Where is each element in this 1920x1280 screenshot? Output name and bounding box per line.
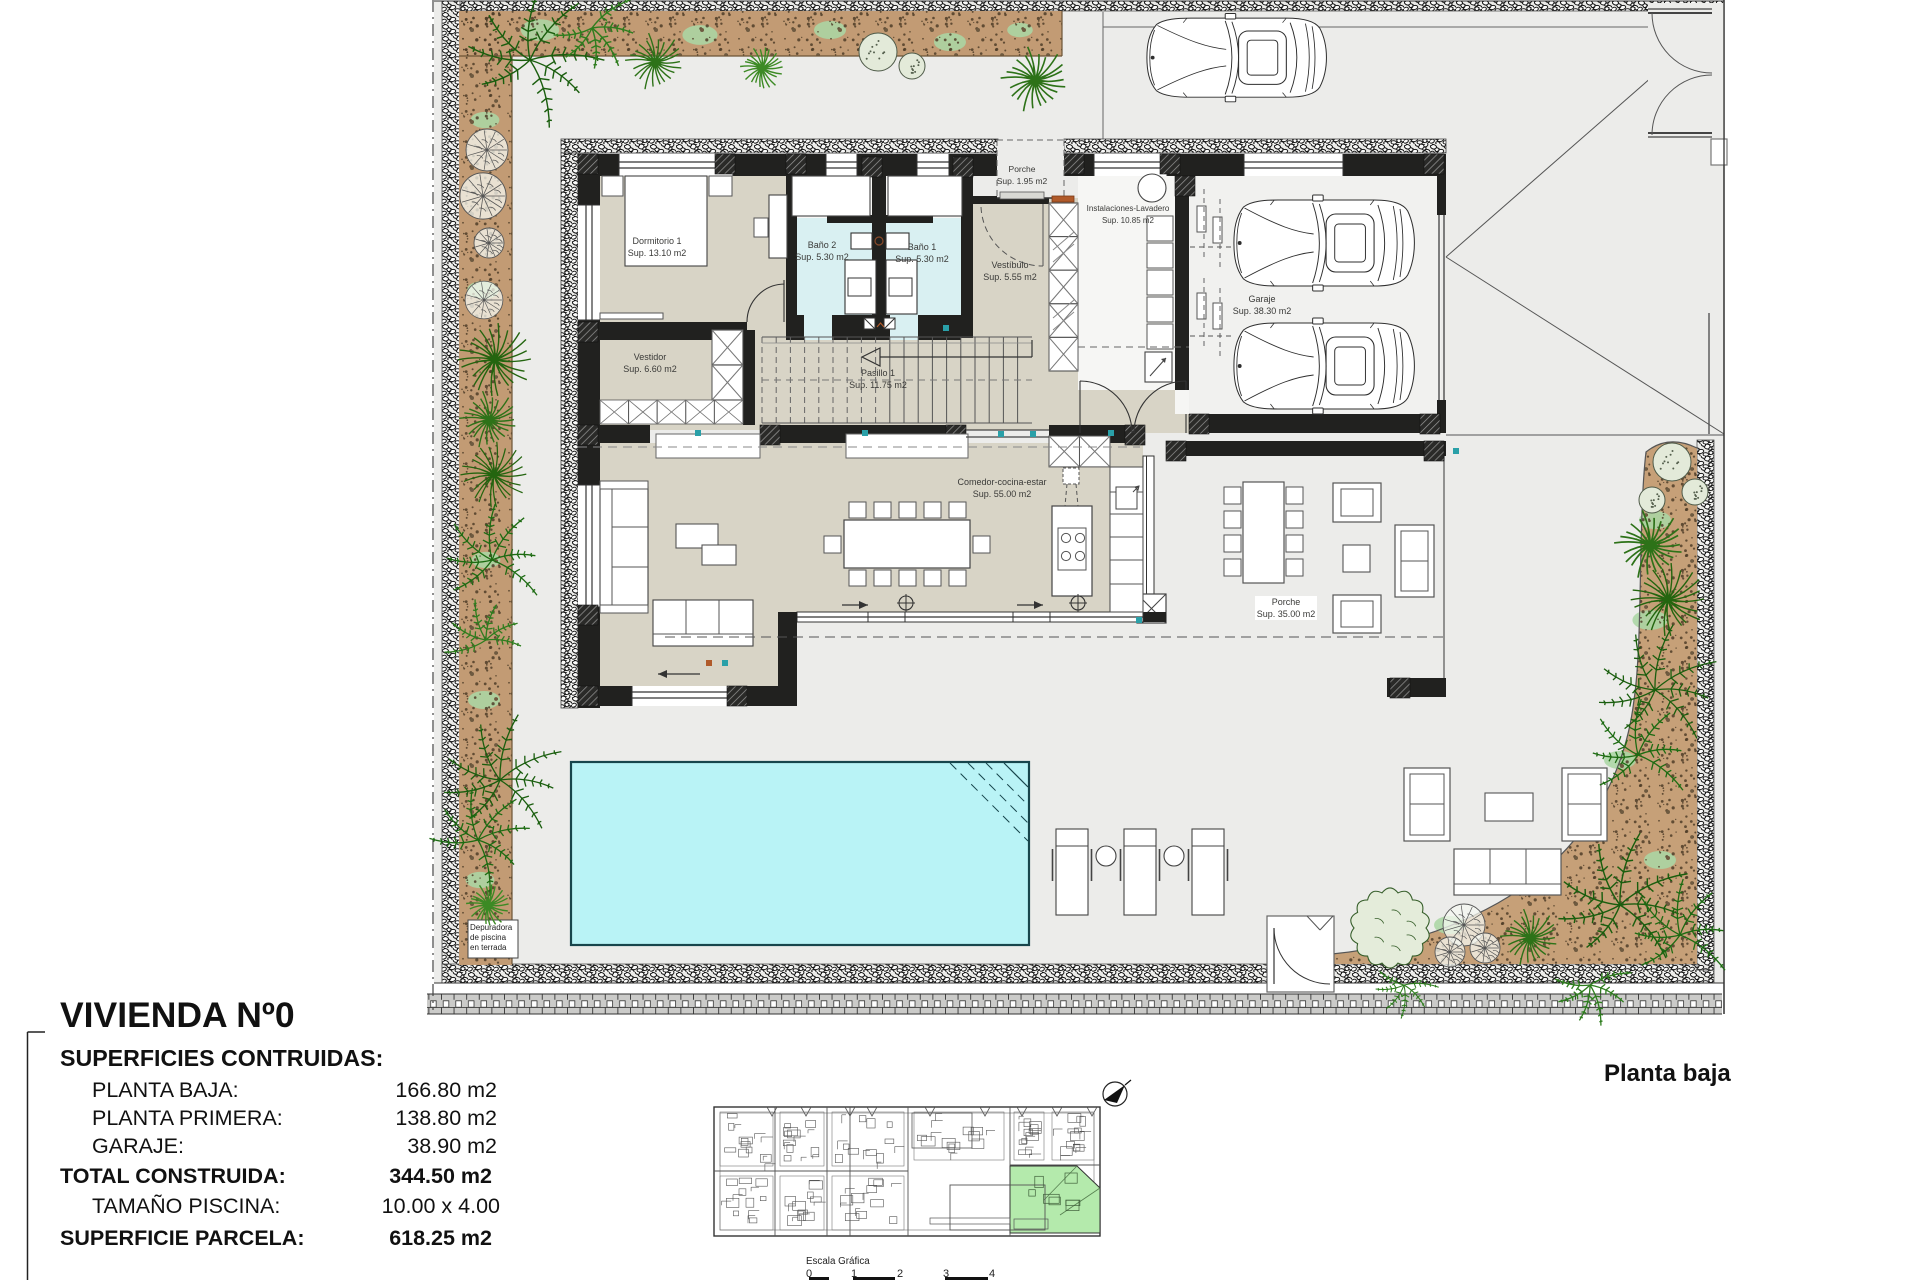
svg-text:Garaje: Garaje (1248, 294, 1275, 304)
svg-text:Pasillo 1: Pasillo 1 (861, 368, 895, 378)
svg-text:Escala Gráfica: Escala Gráfica (806, 1256, 870, 1267)
svg-text:Sup. 35.00 m2: Sup. 35.00 m2 (1257, 609, 1316, 619)
svg-text:SUPERFICIES CONTRUIDAS:: SUPERFICIES CONTRUIDAS: (60, 1045, 383, 1071)
svg-text:Sup. 55.00 m2: Sup. 55.00 m2 (973, 489, 1032, 499)
svg-text:TOTAL CONSTRUIDA:: TOTAL CONSTRUIDA: (60, 1164, 286, 1188)
svg-text:SUPERFICIE PARCELA:: SUPERFICIE PARCELA: (60, 1226, 304, 1250)
svg-text:TAMAÑO PISCINA:: TAMAÑO PISCINA: (92, 1193, 280, 1218)
svg-text:Vestíbulo: Vestíbulo (991, 260, 1028, 270)
svg-text:Sup. 10.85 m2: Sup. 10.85 m2 (1102, 216, 1155, 225)
svg-text:2: 2 (897, 1268, 903, 1280)
svg-text:Sup. 5.30 m2: Sup. 5.30 m2 (795, 252, 849, 262)
svg-text:Baño 1: Baño 1 (908, 242, 937, 252)
svg-text:10.00 x 4.00: 10.00 x 4.00 (382, 1194, 500, 1218)
svg-text:Porche: Porche (1272, 597, 1301, 607)
svg-text:Vestidor: Vestidor (634, 352, 667, 362)
svg-text:PLANTA BAJA:: PLANTA BAJA: (92, 1078, 239, 1102)
svg-text:PLANTA PRIMERA:: PLANTA PRIMERA: (92, 1106, 283, 1130)
svg-text:Baño 2: Baño 2 (808, 240, 837, 250)
svg-text:166.80 m2: 166.80 m2 (395, 1078, 497, 1102)
svg-text:38.90 m2: 38.90 m2 (407, 1134, 497, 1158)
svg-text:4: 4 (989, 1268, 995, 1280)
svg-text:Instalaciones-Lavadero: Instalaciones-Lavadero (1087, 204, 1170, 213)
svg-text:618.25 m2: 618.25 m2 (389, 1226, 492, 1250)
svg-text:Sup. 6.60 m2: Sup. 6.60 m2 (623, 364, 677, 374)
svg-text:GARAJE:: GARAJE: (92, 1134, 184, 1158)
svg-text:Porche: Porche (1009, 164, 1036, 174)
svg-text:Sup. 5.55 m2: Sup. 5.55 m2 (983, 272, 1037, 282)
svg-text:de piscina: de piscina (470, 933, 507, 942)
svg-text:344.50 m2: 344.50 m2 (389, 1164, 492, 1188)
svg-text:138.80 m2: 138.80 m2 (395, 1106, 497, 1130)
svg-text:Sup. 11.75 m2: Sup. 11.75 m2 (849, 380, 907, 390)
svg-text:Sup. 38.30 m2: Sup. 38.30 m2 (1233, 306, 1292, 316)
svg-text:VIVIENDA Nº0: VIVIENDA Nº0 (60, 995, 295, 1035)
svg-text:en terrada: en terrada (470, 943, 507, 952)
svg-text:Sup. 13.10 m2: Sup. 13.10 m2 (628, 248, 687, 258)
svg-text:Comedor-cocina-estar: Comedor-cocina-estar (957, 477, 1046, 487)
svg-text:Dormitorio 1: Dormitorio 1 (632, 236, 681, 246)
svg-text:Depuradora: Depuradora (470, 923, 513, 932)
svg-text:Planta baja: Planta baja (1604, 1060, 1731, 1087)
svg-text:Sup. 5.30 m2: Sup. 5.30 m2 (895, 254, 949, 264)
svg-text:Sup. 1.95 m2: Sup. 1.95 m2 (997, 176, 1048, 186)
